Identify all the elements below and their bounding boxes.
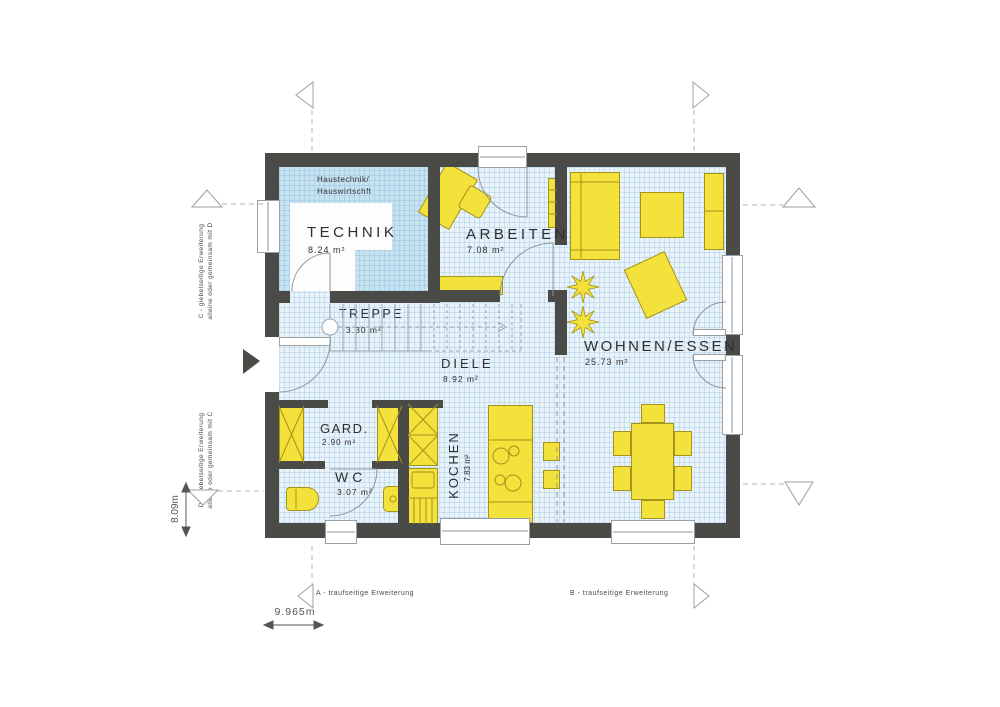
door-swing-arbeiten [500,243,553,296]
marker-triangle-b [694,584,709,608]
plant-icon [567,271,599,338]
furniture-details [279,174,723,524]
door-swing-technik [292,253,330,291]
door-swing-wc [330,469,377,516]
floor-plan-canvas: Haustechnik/Hauswirtschft TECHNIK 8.24 m… [0,0,1000,707]
marker-triangle-right-upper [783,188,815,207]
door-swing-entrance [279,341,330,392]
entrance-arrow-icon [243,349,260,374]
marker-triangle-right-lower [785,482,813,505]
door-swing-arbeiten-top [478,167,527,217]
open-boundary-dashed [557,357,564,522]
staircase [322,304,521,351]
marker-triangle-c [192,190,222,207]
marker-triangle-top-right [693,82,709,108]
stair-start-circle [322,319,338,335]
extension-markers [188,82,815,608]
marker-triangle-a [298,584,313,608]
plan-linework [0,0,1000,707]
marker-triangle-d [188,490,218,505]
marker-axis-dashes [218,110,785,583]
door-swing-terrace-lower [693,355,726,388]
door-swing-terrace-upper [693,302,726,335]
marker-triangle-top-left [296,82,313,108]
